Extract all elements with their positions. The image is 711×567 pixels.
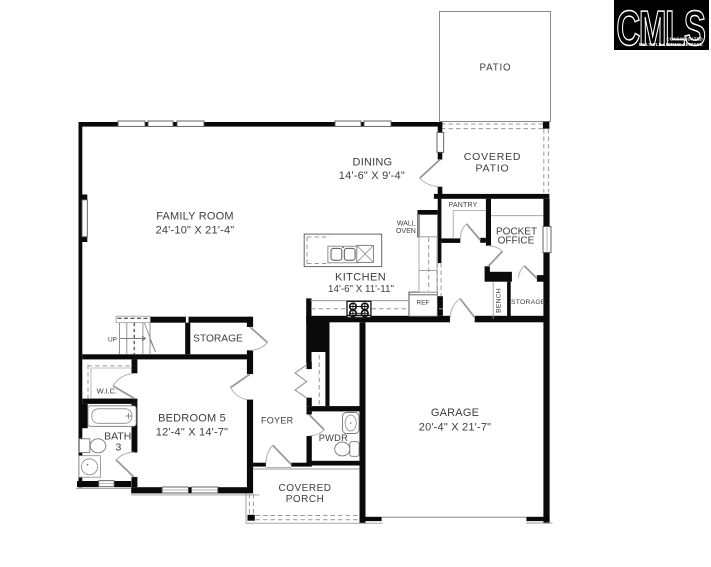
svg-text:MULTIPLE LISTING SERVICE: MULTIPLE LISTING SERVICE (639, 42, 703, 47)
svg-text:UP: UP (108, 337, 117, 344)
svg-text:24'-10" X 21'-4": 24'-10" X 21'-4" (156, 225, 235, 237)
svg-text:BENCH: BENCH (496, 288, 503, 313)
svg-text:FAMILY ROOM: FAMILY ROOM (156, 211, 234, 223)
svg-text:COVERED: COVERED (279, 483, 332, 494)
svg-text:KITCHEN: KITCHEN (335, 272, 386, 284)
svg-text:20'-4" X 21'-7": 20'-4" X 21'-7" (419, 422, 492, 434)
svg-text:3: 3 (115, 442, 121, 454)
svg-text:CMLS: CMLS (616, 1, 705, 56)
svg-text:14'-6" X 9'-4": 14'-6" X 9'-4" (339, 170, 405, 182)
svg-text:REF: REF (417, 300, 430, 307)
svg-text:DINING: DINING (353, 157, 393, 169)
svg-text:PATIO: PATIO (480, 62, 512, 73)
svg-text:STORAGE: STORAGE (193, 333, 243, 344)
svg-text:WALL: WALL (397, 221, 416, 228)
svg-text:OVEN: OVEN (396, 228, 416, 235)
svg-text:OFFICE: OFFICE (498, 236, 535, 247)
svg-text:14'-6" X 11'-11": 14'-6" X 11'-11" (328, 284, 394, 295)
svg-text:GARAGE: GARAGE (431, 407, 479, 419)
svg-text:12'-4" X 14'-7": 12'-4" X 14'-7" (156, 427, 229, 439)
svg-text:COVERED: COVERED (464, 151, 522, 163)
svg-text:PATIO: PATIO (476, 163, 510, 175)
svg-text:PANTRY: PANTRY (449, 202, 478, 209)
svg-text:FOYER: FOYER (261, 416, 294, 426)
svg-text:PORCH: PORCH (286, 494, 325, 505)
svg-text:STORAGE: STORAGE (511, 299, 546, 306)
svg-text:BEDROOM 5: BEDROOM 5 (158, 413, 226, 425)
svg-text:PWDR: PWDR (319, 433, 348, 443)
svg-text:W.I.C.: W.I.C. (97, 387, 117, 396)
